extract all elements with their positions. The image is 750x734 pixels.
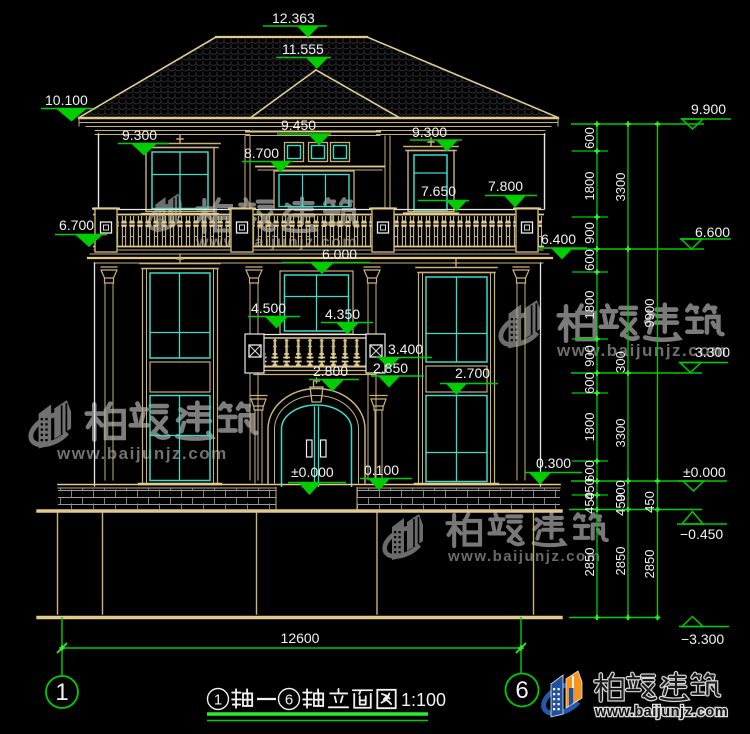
- svg-text:3.400: 3.400: [388, 341, 423, 357]
- svg-text:1800: 1800: [582, 413, 597, 442]
- svg-text:−0.450: −0.450: [680, 526, 723, 542]
- svg-text:300: 300: [613, 351, 628, 373]
- svg-text:2.800: 2.800: [313, 363, 348, 379]
- svg-text:8.700: 8.700: [244, 145, 279, 161]
- svg-text:1800: 1800: [582, 291, 597, 320]
- svg-text:±0.000: ±0.000: [291, 464, 334, 480]
- svg-text:±0.000: ±0.000: [683, 464, 726, 480]
- svg-text:0.300: 0.300: [536, 455, 571, 471]
- svg-text:2850: 2850: [642, 550, 657, 579]
- svg-text:9.450: 9.450: [281, 117, 316, 133]
- svg-text:1:100: 1:100: [401, 690, 446, 710]
- svg-text:2.850: 2.850: [373, 360, 408, 376]
- svg-text:4.350: 4.350: [325, 306, 360, 322]
- svg-text:450: 450: [613, 494, 628, 516]
- svg-text:9.900: 9.900: [691, 101, 726, 117]
- svg-text:6.400: 6.400: [541, 231, 576, 247]
- svg-text:−3.300: −3.300: [681, 631, 724, 647]
- svg-text:3300: 3300: [613, 173, 628, 202]
- svg-text:7.650: 7.650: [421, 183, 456, 199]
- svg-text:3300: 3300: [613, 419, 628, 448]
- svg-text:600: 600: [582, 127, 597, 149]
- svg-text:4.500: 4.500: [251, 300, 286, 316]
- svg-text:www.baijunjz.com: www.baijunjz.com: [56, 444, 228, 463]
- svg-text:6: 6: [515, 677, 528, 704]
- svg-text:6.700: 6.700: [59, 217, 94, 233]
- svg-text:450: 450: [582, 492, 597, 514]
- svg-text:www.baijunjz.com: www.baijunjz.com: [447, 548, 601, 565]
- svg-text:1800: 1800: [582, 172, 597, 201]
- svg-text:2850: 2850: [613, 547, 628, 576]
- svg-text:12.363: 12.363: [272, 10, 315, 26]
- svg-text:900: 900: [582, 345, 597, 367]
- svg-text:450: 450: [642, 491, 657, 513]
- svg-text:3.300: 3.300: [695, 344, 730, 360]
- svg-text:9900: 9900: [642, 299, 657, 328]
- svg-text:9.300: 9.300: [122, 127, 157, 143]
- svg-text:6.600: 6.600: [695, 224, 730, 240]
- svg-text:900: 900: [582, 222, 597, 244]
- svg-text:www.baijunjz.com: www.baijunjz.com: [594, 704, 728, 720]
- svg-text:6.000: 6.000: [322, 246, 357, 262]
- svg-text:6: 6: [285, 692, 293, 709]
- svg-text:9.300: 9.300: [412, 124, 447, 140]
- svg-text:0.100: 0.100: [364, 462, 399, 478]
- svg-text:2.700: 2.700: [455, 365, 490, 381]
- svg-text:7.800: 7.800: [488, 178, 523, 194]
- svg-text:1: 1: [55, 679, 68, 706]
- svg-text:1: 1: [214, 692, 222, 709]
- svg-text:10.100: 10.100: [45, 92, 88, 108]
- svg-text:600: 600: [582, 372, 597, 394]
- svg-text:2850: 2850: [582, 548, 597, 577]
- svg-text:600: 600: [582, 249, 597, 271]
- svg-text:12600: 12600: [281, 630, 320, 646]
- svg-text:11.555: 11.555: [282, 41, 324, 57]
